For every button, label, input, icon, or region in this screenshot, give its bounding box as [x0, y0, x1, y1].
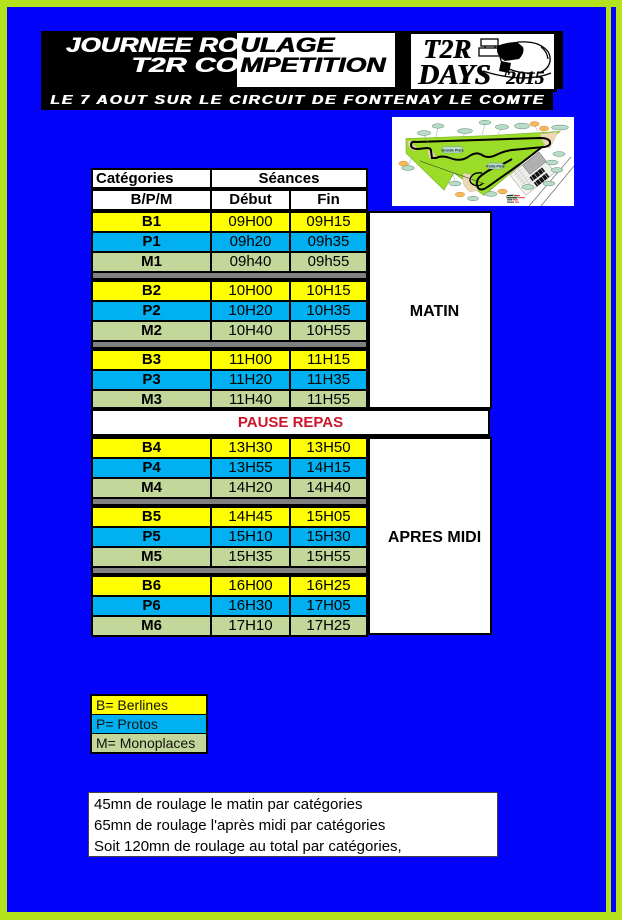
- svg-text:Grande Piste: Grande Piste: [441, 149, 463, 153]
